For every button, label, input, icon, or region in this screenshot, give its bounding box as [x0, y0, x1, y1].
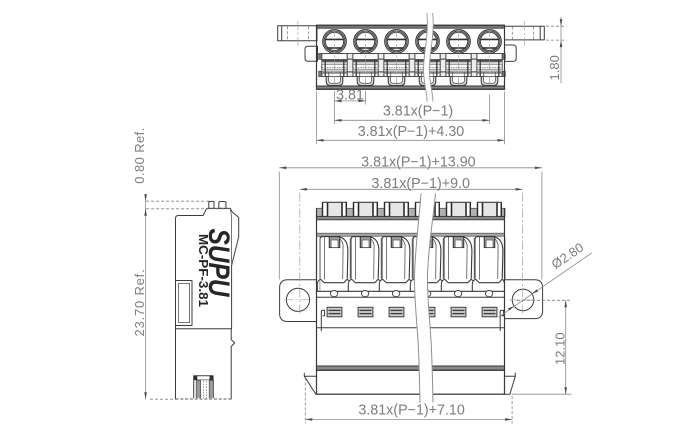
svg-text:3.81x(P−1)+13.90: 3.81x(P−1)+13.90 — [361, 155, 476, 171]
svg-text:12.10: 12.10 — [552, 332, 567, 365]
svg-text:3.81x(P−1)+9.0: 3.81x(P−1)+9.0 — [371, 176, 470, 192]
svg-text:23.70 Ref.: 23.70 Ref. — [132, 269, 147, 337]
svg-text:MC-PF-3.81: MC-PF-3.81 — [196, 234, 210, 307]
svg-text:3.81x(P−1): 3.81x(P−1) — [383, 104, 453, 120]
svg-text:3.81: 3.81 — [336, 88, 364, 104]
svg-text:3.81x(P−1)+7.10: 3.81x(P−1)+7.10 — [358, 403, 465, 419]
svg-text:0.80 Ref.: 0.80 Ref. — [132, 127, 147, 183]
svg-text:1.80: 1.80 — [547, 55, 562, 80]
svg-text:3.81x(P−1)+4.30: 3.81x(P−1)+4.30 — [358, 124, 465, 140]
